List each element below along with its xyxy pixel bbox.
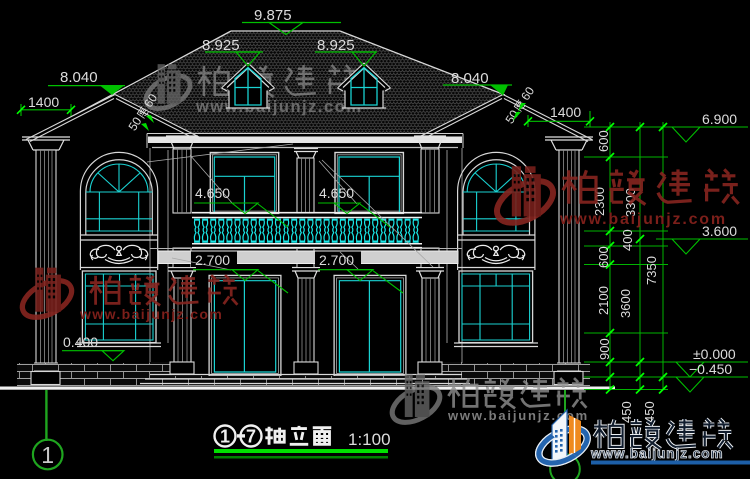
svg-text:400: 400	[620, 229, 635, 251]
svg-text:4.650: 4.650	[319, 185, 354, 201]
svg-text:4.650: 4.650	[195, 185, 230, 201]
svg-text:1400: 1400	[550, 104, 581, 120]
svg-text:900: 900	[597, 338, 612, 360]
svg-text:8.040: 8.040	[60, 69, 98, 86]
svg-text:9.875: 9.875	[254, 7, 292, 24]
svg-text:1: 1	[220, 427, 230, 447]
svg-text:600: 600	[596, 130, 611, 152]
svg-text:2100: 2100	[596, 286, 611, 315]
svg-text:7350: 7350	[644, 256, 659, 285]
svg-text:2.700: 2.700	[319, 252, 354, 268]
svg-text:2.700: 2.700	[195, 252, 230, 268]
svg-text:1:100: 1:100	[348, 430, 391, 449]
svg-text:3600: 3600	[618, 289, 633, 318]
svg-text:450: 450	[619, 401, 634, 423]
svg-text:1: 1	[41, 442, 54, 468]
svg-text:0.400: 0.400	[63, 334, 98, 350]
svg-text:www.baijunjz.com: www.baijunjz.com	[559, 211, 727, 228]
svg-text:±0.000: ±0.000	[693, 346, 736, 362]
svg-text:450: 450	[642, 401, 657, 423]
svg-text:www.baijunjz.com: www.baijunjz.com	[79, 306, 223, 322]
svg-text:600: 600	[596, 246, 611, 268]
svg-text:www.baijunjz.com: www.baijunjz.com	[447, 408, 589, 423]
svg-text:www.baijunjz.com: www.baijunjz.com	[590, 446, 724, 461]
svg-text:6.900: 6.900	[702, 111, 737, 127]
svg-text:7: 7	[246, 427, 256, 447]
svg-text:−0.450: −0.450	[689, 361, 732, 377]
svg-text:www.baijunjz.com: www.baijunjz.com	[195, 98, 362, 116]
svg-text:1400: 1400	[28, 94, 59, 110]
